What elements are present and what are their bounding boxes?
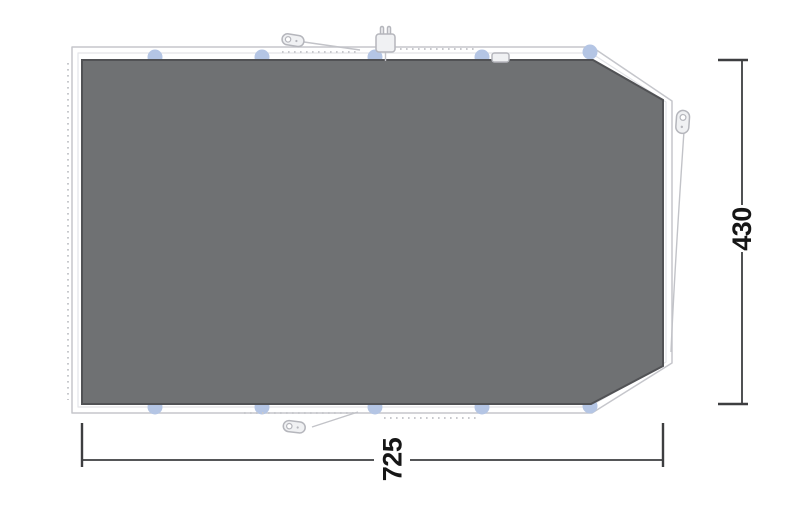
height-dimension-label: 430 [727,207,757,251]
height-dimension: 430 [718,60,757,404]
attachment-tab [583,45,598,60]
guyline-peg-icon [283,420,306,434]
width-dimension: 725 [82,423,663,481]
hanging-loop-icon [671,110,690,352]
guyline-peg-icon [281,33,304,47]
width-dimension-label: 725 [377,437,407,481]
footprint-diagram-canvas: 725 430 [0,0,800,511]
groundsheet [82,60,663,404]
strap-buckle-icon [492,53,509,62]
guyline-bottom [312,412,358,427]
footprint-diagram: 725 430 [0,0,800,511]
